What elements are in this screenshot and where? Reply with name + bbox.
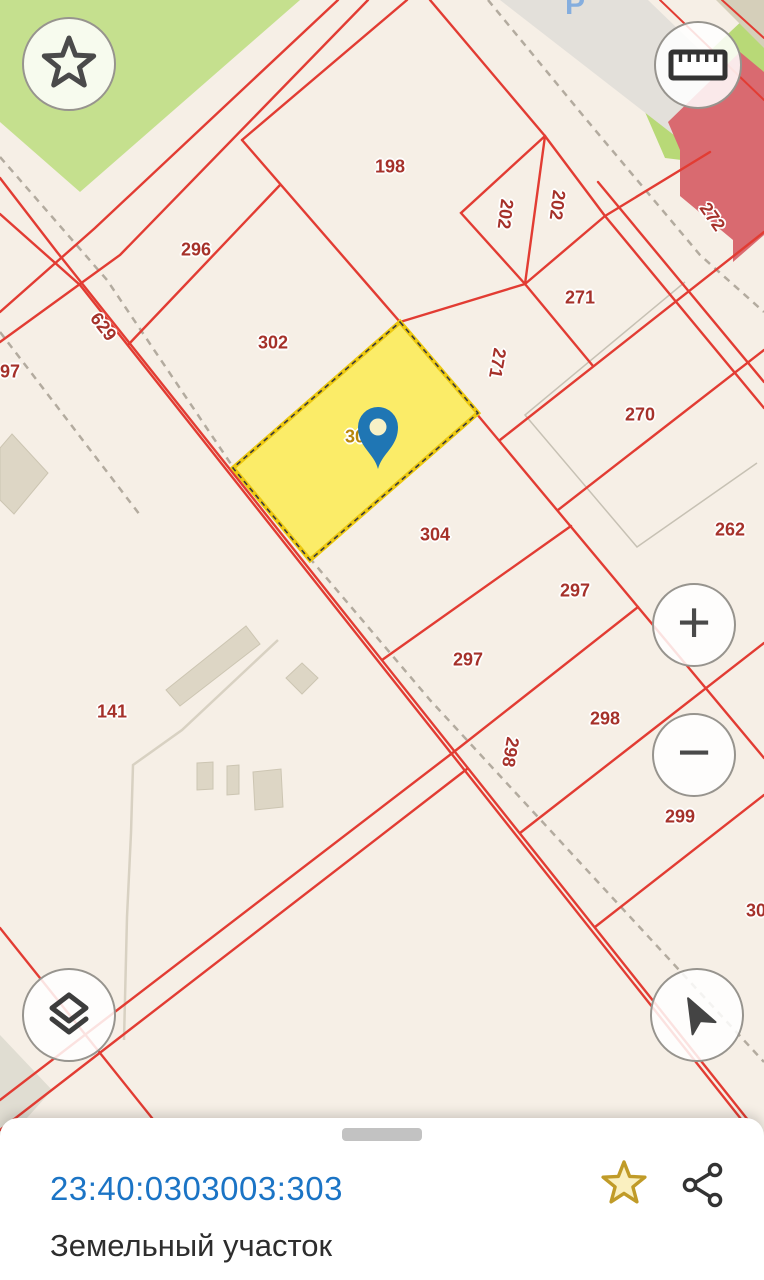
- share-button[interactable]: [676, 1160, 728, 1210]
- cadastral-number-link[interactable]: 23:40:0303003:303: [50, 1170, 343, 1208]
- favorite-star-button[interactable]: [598, 1158, 650, 1210]
- navigation-arrow-icon: [669, 987, 725, 1043]
- star-icon: [39, 34, 99, 94]
- drag-handle[interactable]: [342, 1128, 422, 1141]
- cadastral-map-app: 1982022022962713022712702976293032623042…: [0, 0, 764, 1280]
- favorites-button[interactable]: [22, 17, 116, 111]
- map-background: [0, 0, 764, 1280]
- map-canvas[interactable]: [0, 0, 764, 1280]
- layers-button[interactable]: [22, 968, 116, 1062]
- compass-button[interactable]: [650, 968, 744, 1062]
- layers-icon: [41, 987, 97, 1043]
- share-icon: [684, 1164, 720, 1205]
- star-filled-icon: [603, 1162, 645, 1202]
- zoom-in-button[interactable]: +: [652, 583, 736, 667]
- measure-button[interactable]: [654, 21, 742, 109]
- parcel-type-label: Земельный участок: [50, 1228, 332, 1264]
- zoom-out-button[interactable]: −: [652, 713, 736, 797]
- ruler-icon: [666, 43, 730, 87]
- parcel-info-sheet: 23:40:0303003:303 Земельный участок: [0, 1118, 764, 1280]
